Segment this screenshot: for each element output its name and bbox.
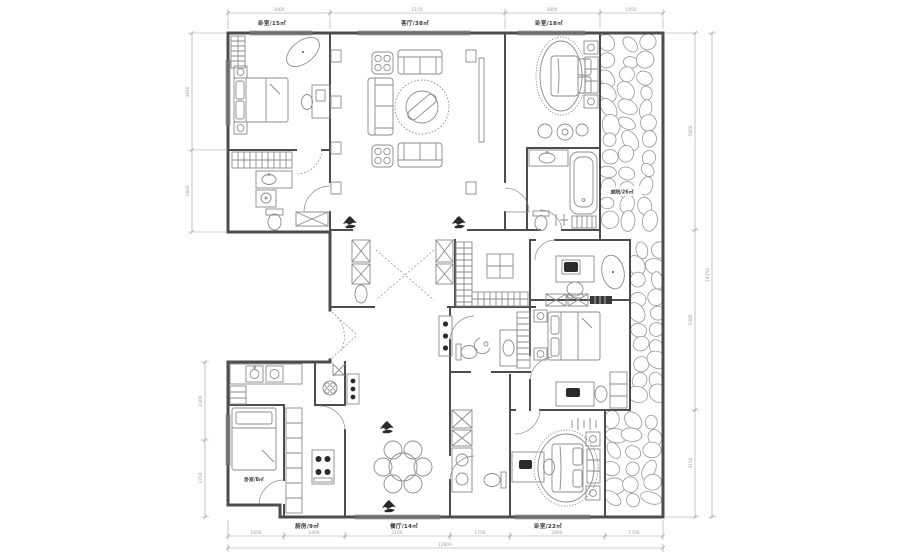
- double-bed-icon: [234, 78, 288, 122]
- radiator-icon: [347, 374, 359, 404]
- vanity-sink-icon: [529, 150, 568, 166]
- living-furniture: [331, 50, 484, 194]
- island-table-icon: [487, 254, 513, 278]
- closet-rack-icon: [232, 152, 292, 168]
- dim-label: 3000: [273, 7, 284, 13]
- sofa-left-icon: [368, 78, 393, 135]
- room-label-bedroom4: 卧室/22㎡: [534, 522, 562, 530]
- nightstand-icon: [234, 66, 247, 134]
- dim-total-label: 12800: [438, 542, 452, 548]
- room-label-kitchen: 厨房/9㎡: [295, 522, 319, 530]
- garden-stone: [645, 415, 657, 429]
- double-vanity-icon: [452, 448, 472, 492]
- washer-icon: [452, 410, 472, 446]
- maid-room-furniture: [232, 408, 276, 470]
- garden-stone: [595, 31, 617, 54]
- wall-cabinet-icons: [331, 50, 484, 194]
- study-furniture: [546, 253, 627, 306]
- room-label-dining: 餐厅/14㎡: [389, 522, 418, 530]
- oval-bed-icon: [536, 37, 591, 115]
- desk-icon: [556, 256, 594, 282]
- dim-label: 1800: [308, 530, 319, 536]
- door-bath2: [540, 210, 562, 230]
- dim-label: 1650: [250, 530, 261, 536]
- floor-plan-canvas: 3000 5150 2800 1850 1650 1800 3100 1750 …: [0, 0, 920, 560]
- corner-sink-icon: [333, 364, 345, 376]
- dim-label: 5150: [411, 7, 422, 13]
- door-arcs: [259, 150, 562, 504]
- hanger-rack-icon: [517, 312, 530, 368]
- counter-sinks-icon: [230, 364, 302, 384]
- shower-room-furniture: [323, 364, 359, 404]
- dim-chain-left: [188, 31, 226, 234]
- dresser-icon: [302, 85, 331, 118]
- door-study: [535, 240, 555, 260]
- garden-stone: [619, 474, 641, 496]
- bidet-icon: [474, 338, 490, 354]
- hall-cabinet-icon: [436, 240, 453, 284]
- garden-stone: [629, 321, 649, 339]
- game-table-icon: [372, 52, 393, 74]
- vanity-sink-icon: [256, 171, 292, 188]
- toilet-icon: [484, 472, 506, 488]
- dim-label: 2300: [198, 395, 204, 406]
- rug-icon: [599, 253, 628, 291]
- window-symbols: [226, 31, 590, 519]
- garden-stones: [595, 31, 672, 509]
- door-bedroom4: [515, 410, 540, 434]
- garden-stone: [648, 239, 671, 262]
- garden-stone: [639, 85, 653, 101]
- room-label-bedroom1: 卧室/15㎡: [258, 19, 286, 27]
- dining-table-icon: [374, 441, 432, 493]
- single-bed-icon: [232, 408, 276, 470]
- bedroom4-furniture: [512, 418, 600, 506]
- radiator-marks: [572, 418, 596, 430]
- desk-icon: [556, 382, 594, 406]
- garden-stone: [617, 165, 636, 182]
- toilet-icon: [456, 344, 477, 360]
- hanger-rack-icon: [456, 242, 472, 306]
- dim-label: 3100: [391, 530, 402, 536]
- chair-icon: [567, 282, 583, 298]
- powder-room-furniture: [456, 312, 530, 368]
- window-bench-icon: [296, 212, 328, 226]
- garden-stone: [634, 48, 657, 71]
- door-bedroom1: [298, 150, 322, 174]
- dresser-icon: [587, 449, 600, 483]
- garden-stone: [643, 442, 661, 458]
- hall-dashed-decor: [376, 250, 434, 300]
- hanger-rack-icon: [472, 292, 528, 306]
- kitchen-furniture: [230, 364, 334, 513]
- door-powder: [450, 316, 474, 340]
- vanity-sink-icon: [500, 330, 517, 366]
- cabinet-icon: [610, 372, 627, 408]
- dim-label: 2800: [546, 7, 557, 13]
- bathroom1-furniture: [232, 152, 328, 230]
- room-label-maid: 卧室/8㎡: [244, 476, 264, 483]
- garden-stone: [642, 130, 657, 147]
- plant-icon: [343, 216, 357, 228]
- room-label-garden: 庭院/26㎡: [611, 189, 634, 196]
- garden-stone: [601, 148, 620, 166]
- dim-label: 3450: [185, 86, 191, 97]
- garden-stone: [600, 197, 615, 209]
- bathtub-icon: [570, 152, 597, 214]
- closet-furniture: [456, 242, 528, 306]
- ottoman-icon: [372, 145, 393, 167]
- garden-stone: [628, 270, 648, 290]
- garden-stone: [620, 210, 635, 232]
- chair-icon: [595, 386, 607, 402]
- wardrobe-icon: [231, 36, 245, 68]
- door-kitchen: [320, 406, 345, 430]
- room-label-living: 客厅/38㎡: [400, 19, 429, 27]
- dim-label: 2800: [551, 530, 562, 536]
- garden-stone: [624, 460, 642, 478]
- bedroom1-furniture: [231, 32, 330, 134]
- sofa-bottom-icon: [398, 143, 442, 167]
- garden-stone: [634, 68, 655, 88]
- shelf-icon: [556, 214, 596, 228]
- door-bath1: [304, 186, 330, 212]
- dim-chain-top: [226, 9, 665, 29]
- toilet-icon: [533, 211, 549, 231]
- desk-icon: [512, 452, 555, 482]
- garden-stone: [639, 161, 657, 179]
- dim-label: 2400: [185, 185, 191, 196]
- garden-stone: [639, 489, 663, 506]
- plant-icon: [380, 421, 394, 433]
- cooktop-icon: [312, 450, 334, 484]
- plant-icon: [382, 500, 396, 512]
- window-lines: [226, 31, 590, 519]
- garden-stone: [624, 491, 642, 509]
- plants: [343, 216, 466, 512]
- garden-stone: [620, 34, 640, 55]
- bathroom4-furniture: [452, 410, 506, 492]
- garden-stone: [598, 208, 621, 231]
- dim-label: 1750: [474, 530, 485, 536]
- door-bedroom3: [530, 357, 552, 380]
- bathroom2-furniture: [529, 150, 597, 231]
- plant-icon: [452, 216, 466, 228]
- garden-stone: [631, 334, 652, 354]
- nightstand-icon: [586, 432, 600, 500]
- hallway-furniture: [352, 240, 453, 356]
- sofa-top-icon: [398, 50, 442, 74]
- tall-cabinet-icon: [286, 408, 302, 513]
- garden-stone: [646, 380, 672, 406]
- dim-label: 5300: [688, 314, 694, 325]
- pouf-icons: [538, 124, 588, 140]
- dining-furniture: [374, 441, 432, 493]
- door-bath4: [450, 456, 474, 480]
- hall-cabinet-icon: [352, 240, 370, 303]
- garden-stone: [598, 165, 617, 179]
- entry-double-door: [332, 312, 356, 358]
- dim-label: 1850: [625, 7, 636, 13]
- garden-stone: [615, 96, 640, 118]
- dim-label: 1700: [628, 530, 639, 536]
- garden-stone: [644, 348, 671, 372]
- double-bed-icon: [548, 312, 600, 360]
- dim-label: 5800: [688, 125, 694, 136]
- door-maid: [259, 480, 284, 504]
- door-bedroom2: [505, 188, 529, 212]
- dim-label: 2250: [198, 472, 204, 483]
- nightstand-icon: [534, 310, 547, 360]
- dim-label: 3150: [688, 457, 694, 468]
- garden-stone: [619, 66, 635, 82]
- floor-plan-drawing: 3000 5150 2800 1850 1650 1800 3100 1750 …: [0, 0, 920, 560]
- garden-stone: [623, 443, 643, 461]
- toilet-icon: [266, 209, 283, 230]
- floor-drain-icon: [323, 381, 337, 395]
- bidet-icon: [256, 190, 276, 207]
- round-rug-icon: [395, 80, 449, 134]
- rug-icon: [281, 32, 324, 73]
- room-label-bedroom2: 卧室/18㎡: [535, 19, 563, 27]
- furniture: [230, 32, 627, 513]
- bedroom2-furniture: [536, 37, 598, 140]
- dim-chain-left-lower: [201, 360, 209, 519]
- bedroom3-furniture: [534, 310, 627, 408]
- dim-total-label: 14250: [705, 268, 711, 282]
- fridge-icon: [230, 386, 246, 404]
